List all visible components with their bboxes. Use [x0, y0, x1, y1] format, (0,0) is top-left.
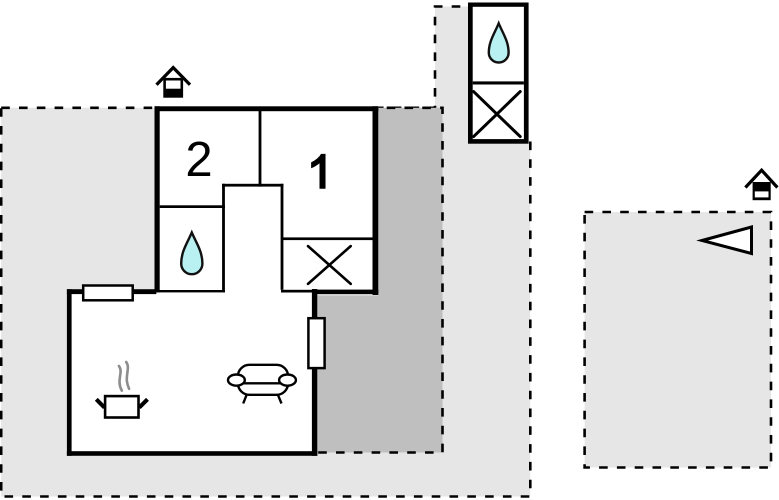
svg-text:2: 2 [185, 133, 212, 187]
